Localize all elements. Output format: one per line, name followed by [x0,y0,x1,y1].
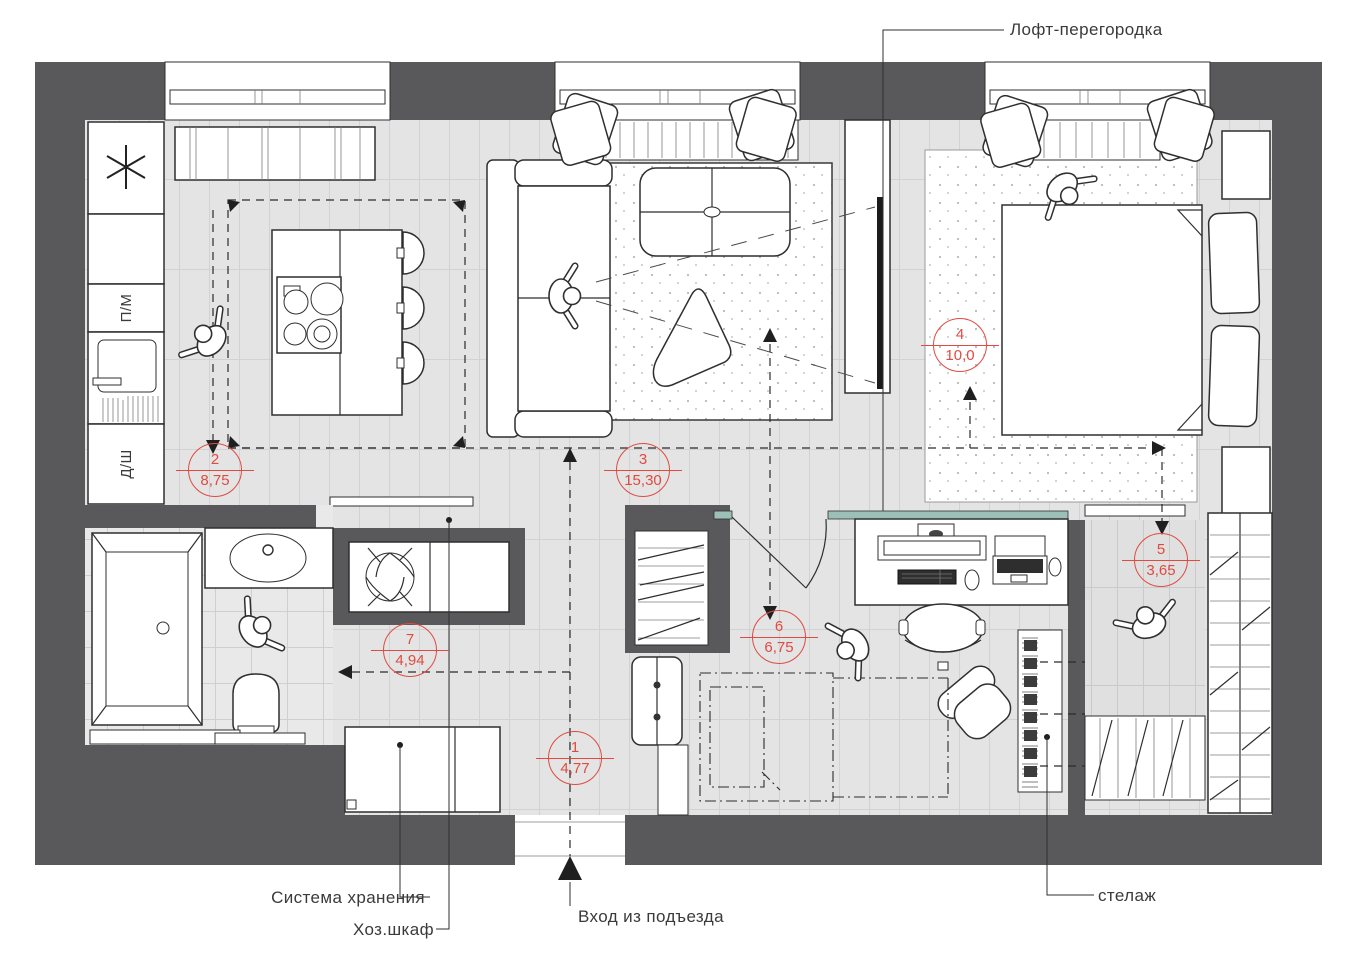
lower-wardrobe [1085,716,1205,800]
mouse [1049,558,1061,576]
mouse [965,570,979,590]
room-area: 3,65 [1146,562,1175,580]
windows [165,62,1210,120]
console-shelf [1085,505,1185,516]
bathroom-door-gap [316,505,333,528]
room-number: 3 [639,451,647,469]
glass-partition [714,511,732,519]
label-entrance: Вход из подъезда [578,907,724,927]
sofa-armrest [515,411,612,437]
console [330,497,473,506]
keyboard [898,570,956,584]
sofa-back [487,160,519,437]
room-number: 4 [956,326,964,344]
room-area: 15,30 [624,472,662,490]
room-number: 1 [571,739,579,757]
cabinet [88,214,164,284]
laptop [995,536,1045,556]
room-area: 8,75 [200,472,229,490]
label-dishwasher: П/М [106,280,146,336]
room-number: 2 [211,451,219,469]
pillow [1208,212,1259,314]
room-area: 6,75 [764,639,793,657]
nightstand [1222,131,1270,199]
label-storage-system: Система хранения [271,888,425,908]
toilet [233,674,279,738]
label-utility-cabinet: Хоз.шкаф [353,920,434,940]
room-area: 4,77 [560,760,589,778]
vanity-sink [205,528,333,588]
tall-wardrobe [1208,513,1272,813]
room-stamp-2: 2 8,75 [188,443,242,497]
room-stamp-3: 3 15,30 [616,443,670,497]
room-stamp-7: 7 4,94 [383,623,437,677]
room-number: 6 [775,618,783,636]
kitchen-window [165,62,390,120]
bath-threshold [215,733,305,744]
room-stamp-4: 4 10,0 [933,318,987,372]
label-loft-partition: Лофт-перегородка [1010,20,1163,40]
room-number: 5 [1157,541,1165,559]
room-stamp-1: 1 4,77 [548,731,602,785]
room-area: 4,94 [395,652,424,670]
room-stamp-6: 6 6,75 [752,610,806,664]
room-number: 7 [406,631,414,649]
bed [1002,205,1202,435]
glass-partition [828,511,1068,519]
storage-system-unit [345,727,500,812]
bathtub [92,533,202,725]
room-stamp-5: 5 3,65 [1134,533,1188,587]
nightstand [1222,447,1270,515]
pillow [1208,325,1259,427]
upper-cabinets [175,127,375,180]
bar-stools [397,232,424,384]
room-area: 10,0 [945,347,974,365]
tv [877,197,883,389]
label-shelving: стелаж [1098,886,1156,906]
label-oven: Д/Ш [106,436,146,492]
floor-plan: Лофт-перегородка Система хранения Хоз.шк… [0,0,1358,960]
